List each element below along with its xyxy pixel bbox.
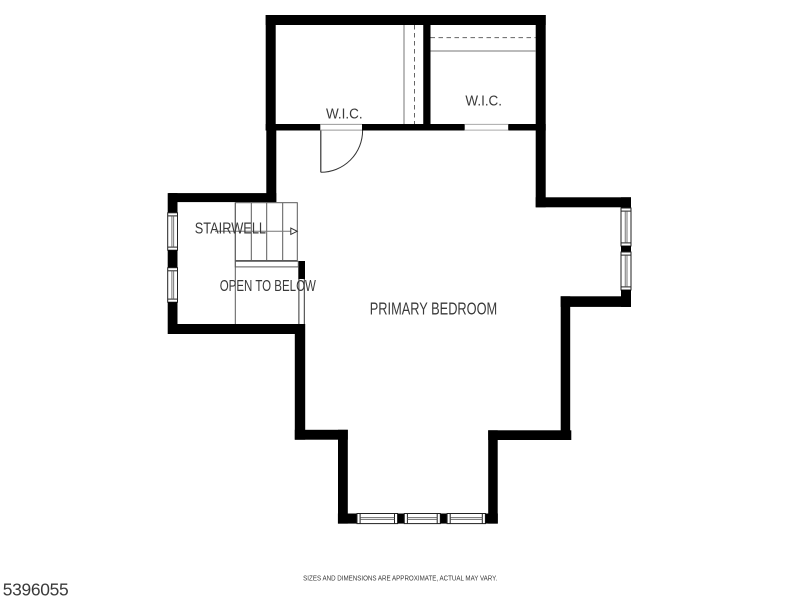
svg-text:5396055: 5396055 [3, 580, 69, 600]
svg-text:STAIRWELL: STAIRWELL [195, 220, 266, 237]
svg-text:SIZES AND DIMENSIONS ARE APPRO: SIZES AND DIMENSIONS ARE APPROXIMATE, AC… [303, 575, 497, 582]
svg-text:W.I.C.: W.I.C. [465, 92, 502, 109]
svg-text:W.I.C.: W.I.C. [326, 105, 363, 122]
svg-text:PRIMARY BEDROOM: PRIMARY BEDROOM [370, 300, 497, 320]
svg-text:OPEN TO BELOW: OPEN TO BELOW [220, 276, 317, 294]
